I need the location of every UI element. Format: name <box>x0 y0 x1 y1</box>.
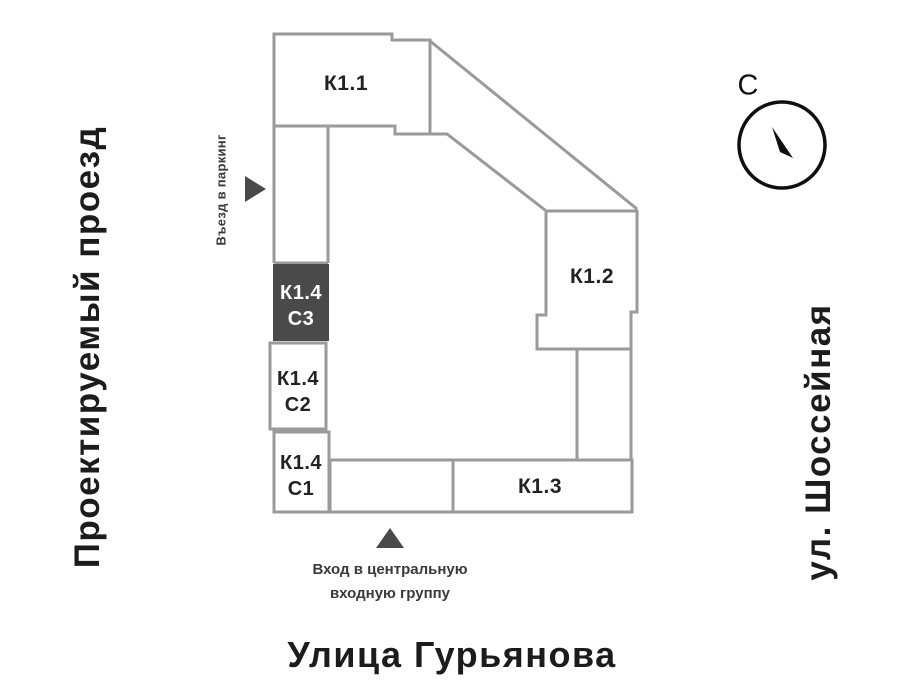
street-label-proektiruemy-proezd: Проектируемый проезд <box>68 126 108 568</box>
k14-c2-line2: С2 <box>277 392 319 418</box>
k14-c3-line2: С3 <box>280 306 322 332</box>
parking-entrance-label: Въезд в паркинг <box>214 134 229 245</box>
building-k14-c1-label: К1.4 С1 <box>280 450 322 502</box>
parking-entrance-arrow-icon <box>245 176 266 202</box>
building-k11-label: К1.1 <box>324 72 368 96</box>
diagonal-wing-upper-edge <box>430 41 637 209</box>
building-k14-c2-label: К1.4 С2 <box>277 366 319 418</box>
compass-north-label: С <box>738 70 759 103</box>
building-k13-shape[interactable] <box>330 460 632 512</box>
street-label-shosseynaya: ул. Шоссейная <box>799 303 839 580</box>
site-plan: К1.1 К1.2 К1.3 К1.4 С3 К1.4 С2 К1.4 С1 В… <box>0 0 900 700</box>
k14-c2-line1: К1.4 <box>277 366 319 392</box>
building-k13-label: К1.3 <box>518 475 562 499</box>
building-k12-label: К1.2 <box>570 265 614 289</box>
k14-c3-line1: К1.4 <box>280 280 322 306</box>
k14-c1-line2: С1 <box>280 476 322 502</box>
compass-needle-icon <box>772 127 793 158</box>
diagonal-wing-lower-edge <box>430 134 545 210</box>
street-label-guryanova: Улица Гурьянова <box>287 634 616 676</box>
main-entrance-label: Вход в центральную входную группу <box>290 558 490 606</box>
main-entrance-arrow-icon <box>376 528 404 548</box>
building-k14-c3-label: К1.4 С3 <box>280 280 322 332</box>
k14-c1-line1: К1.4 <box>280 450 322 476</box>
